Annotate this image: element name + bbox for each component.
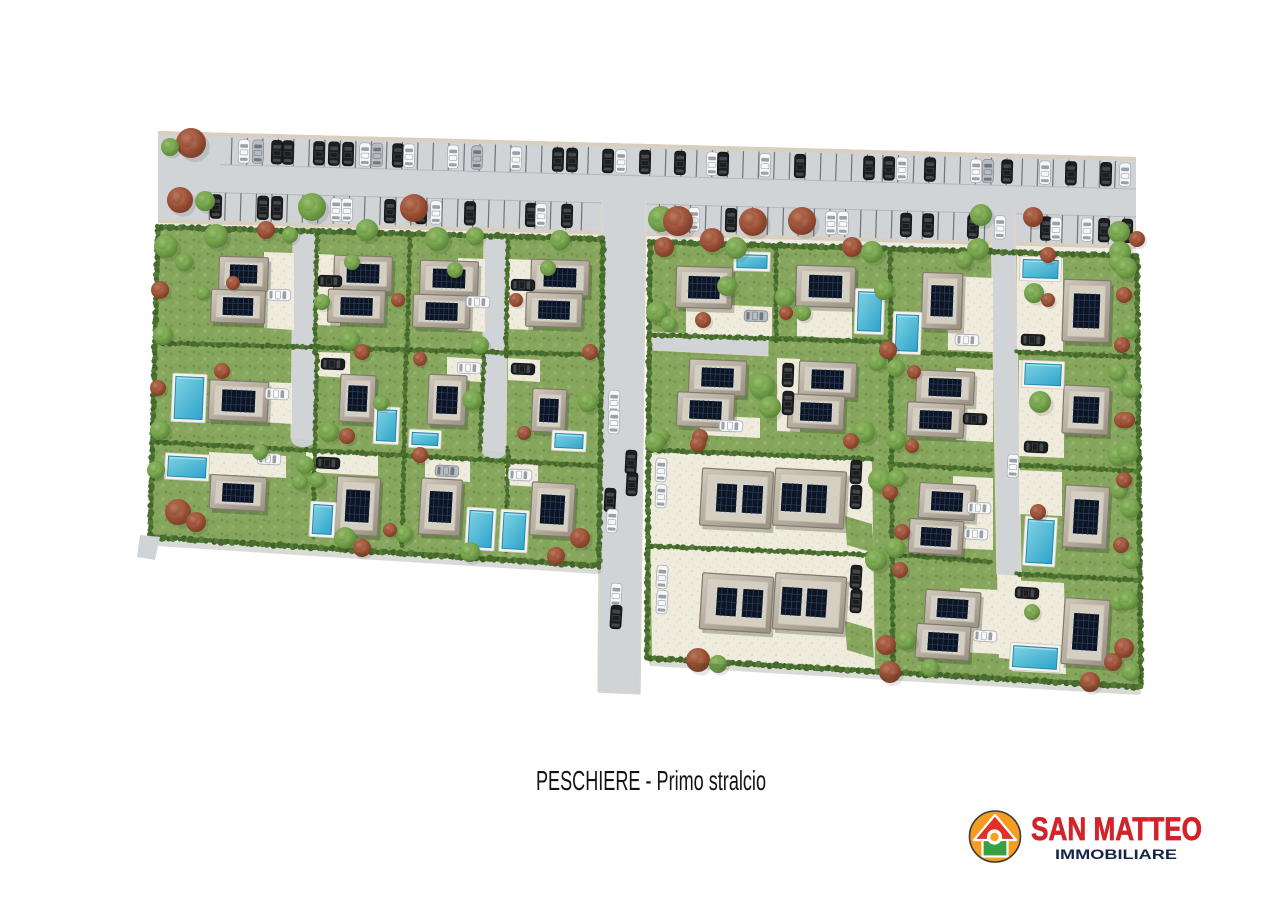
svg-text:PESCHIERE - Primo stralcio: PESCHIERE - Primo stralcio xyxy=(536,765,766,796)
svg-text:SAN MATTEO: SAN MATTEO xyxy=(1031,811,1202,847)
svg-text:IMMOBILIARE: IMMOBILIARE xyxy=(1055,847,1177,862)
